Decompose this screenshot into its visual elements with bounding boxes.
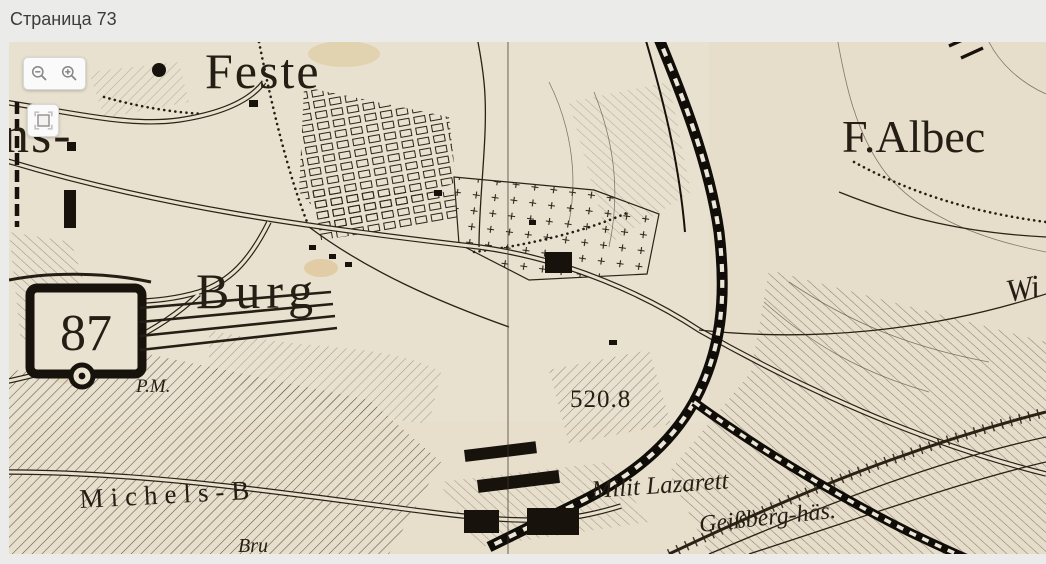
map-label-elevation: 520.8 [570,386,631,413]
map-label-feste: Feste [205,43,321,99]
map-label-burg: Burg [196,263,319,319]
magnifier-plus-icon [61,65,78,82]
map-label-right-partial: Wi [1003,268,1043,309]
magnifier-minus-icon [31,65,48,82]
map-label-bottom-partial: Bru [238,535,268,554]
map-viewer: Feste F.Albec Burg 87 520.8 Milit Lazare… [9,42,1046,554]
sheet-fold-line [508,42,509,554]
map-label-pm: P.M. [135,376,170,397]
page-header: Страница 73 [0,0,1046,42]
zoom-in-button[interactable] [55,58,86,89]
map-label-f-albeck: F.Albec [842,111,985,162]
zoom-out-button[interactable] [24,58,55,89]
zoom-controls [23,57,86,90]
fullscreen-icon [34,111,53,130]
fullscreen-button[interactable] [27,104,59,137]
map-label-fort-number: 87 [60,305,112,362]
page-title: Страница 73 [10,9,117,30]
map-image[interactable]: Feste F.Albec Burg 87 520.8 Milit Lazare… [9,42,1046,554]
